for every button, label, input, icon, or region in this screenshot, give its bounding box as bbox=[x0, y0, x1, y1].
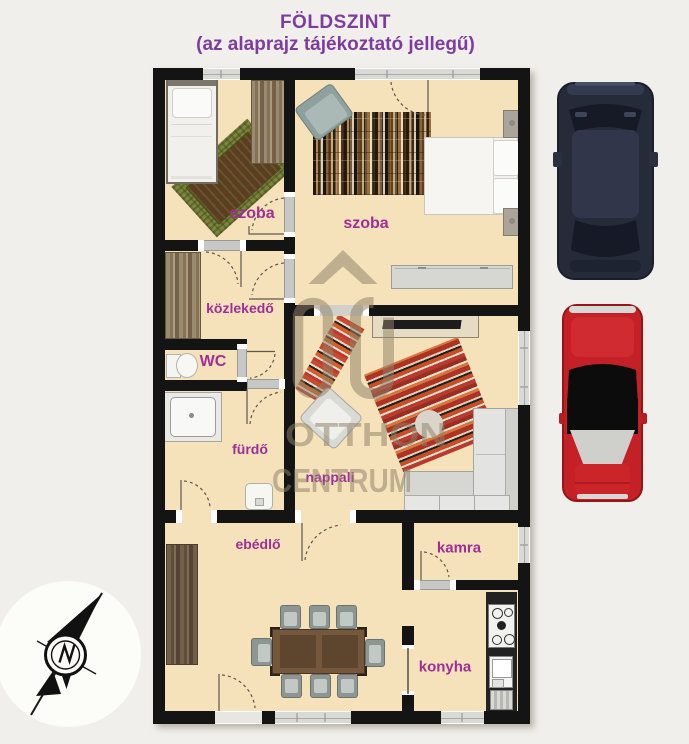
svg-text:OTTHON: OTTHON bbox=[285, 416, 447, 453]
svg-text:CENTRUM: CENTRUM bbox=[272, 462, 412, 499]
